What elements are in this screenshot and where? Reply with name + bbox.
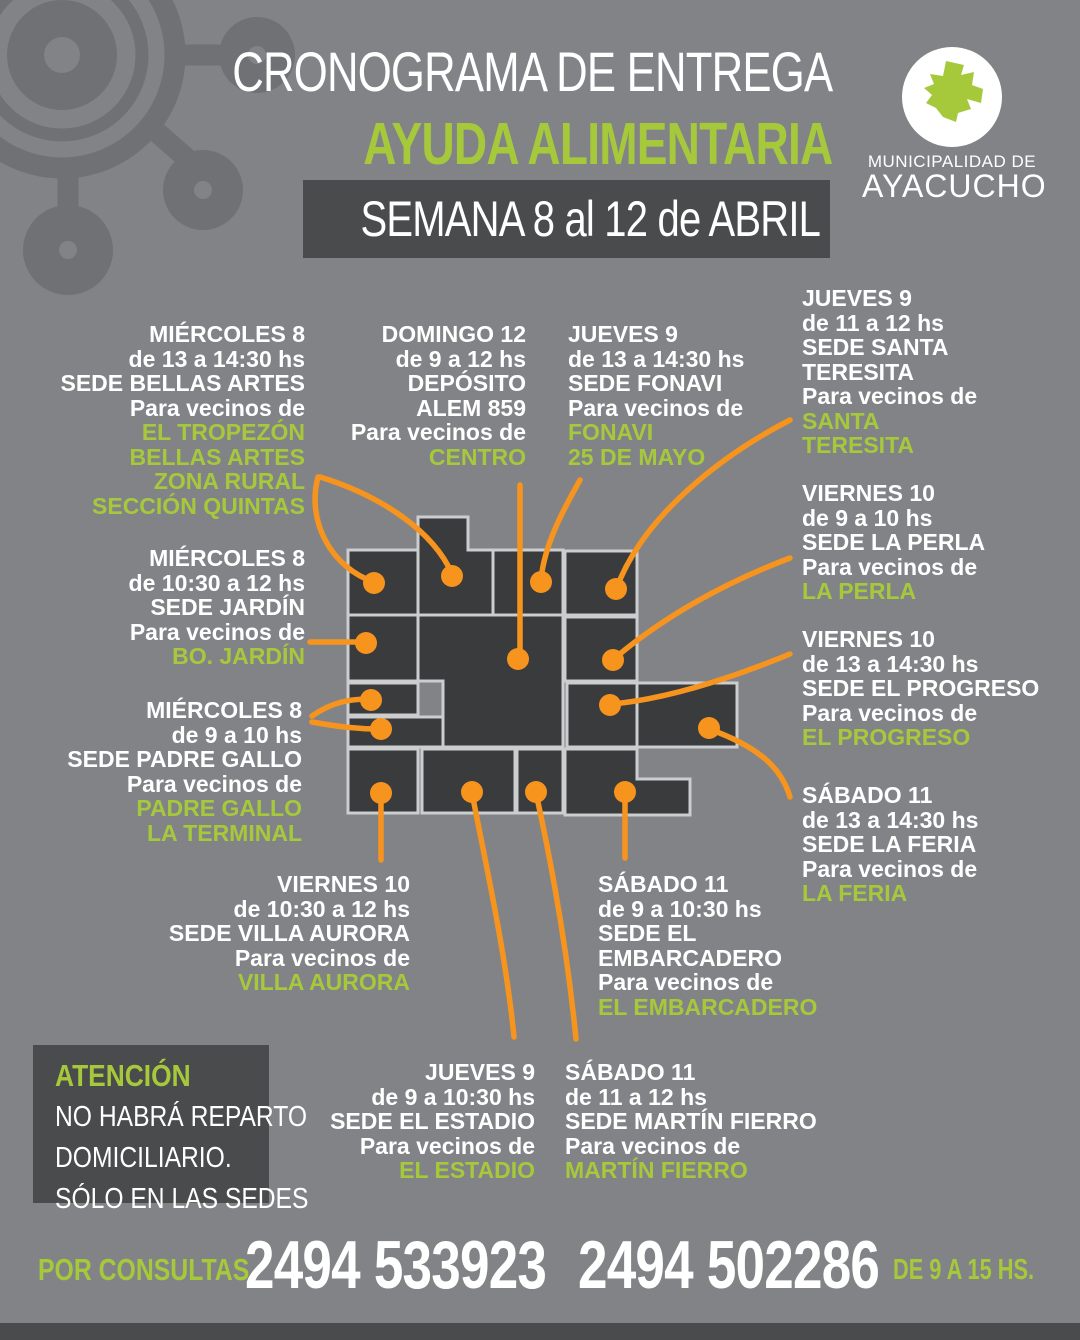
- schedule-intro: Para vecinos de: [351, 420, 526, 445]
- schedule-block-martin-fierro: SÁBADO 11de 11 a 12 hsSEDE MARTÍN FIERRO…: [565, 1060, 817, 1183]
- attention-box: ATENCIÓN NO HABRÁ REPARTO DOMICILIARIO. …: [33, 1045, 269, 1203]
- schedule-zone: SANTA: [802, 409, 977, 434]
- schedule-time: de 9 a 10:30 hs: [598, 897, 817, 922]
- schedule-block-la-feria: SÁBADO 11de 13 a 14:30 hsSEDE LA FERIAPa…: [802, 783, 978, 906]
- schedule-place: SEDE EL: [598, 921, 817, 946]
- attention-line-text: NO HABRÁ REPARTO: [55, 1099, 307, 1135]
- schedule-block-jardin: MIÉRCOLES 8de 10:30 a 12 hsSEDE JARDÍNPa…: [129, 546, 305, 669]
- schedule-block-villa-aurora: VIERNES 10de 10:30 a 12 hsSEDE VILLA AUR…: [169, 872, 410, 995]
- schedule-intro: Para vecinos de: [169, 946, 410, 971]
- schedule-block-padre-gallo: MIÉRCOLES 8de 9 a 10 hsSEDE PADRE GALLOP…: [67, 698, 302, 845]
- schedule-place: SEDE LA PERLA: [802, 530, 985, 555]
- schedule-zone: VILLA AURORA: [169, 970, 410, 995]
- schedule-place: SEDE LA FERIA: [802, 832, 978, 857]
- schedule-zone: EL TROPEZÓN: [60, 420, 305, 445]
- schedule-zone: FONAVI: [568, 420, 744, 445]
- schedule-time: de 13 a 14:30 hs: [802, 652, 1039, 677]
- schedule-intro: Para vecinos de: [60, 396, 305, 421]
- schedule-block-embarcadero: SÁBADO 11de 9 a 10:30 hsSEDE ELEMBARCADE…: [598, 872, 817, 1019]
- schedule-time: de 13 a 14:30 hs: [802, 808, 978, 833]
- schedule-time: de 9 a 10 hs: [802, 506, 985, 531]
- schedule-time: de 9 a 12 hs: [351, 347, 526, 372]
- attention-line-text: DOMICILIARIO.: [55, 1140, 232, 1176]
- schedule-place: SEDE PADRE GALLO: [67, 747, 302, 772]
- attention-line-text: SÓLO EN LAS SEDES: [55, 1181, 308, 1217]
- schedule-zone: BO. JARDÍN: [129, 644, 305, 669]
- schedule-place: DEPÓSITO: [351, 371, 526, 396]
- schedule-place: ALEM 859: [351, 396, 526, 421]
- schedule-day: MIÉRCOLES 8: [129, 546, 305, 571]
- schedule-day: SÁBADO 11: [598, 872, 817, 897]
- schedule-block-el-progreso: VIERNES 10de 13 a 14:30 hsSEDE EL PROGRE…: [802, 627, 1039, 750]
- schedule-time: de 9 a 10:30 hs: [330, 1085, 535, 1110]
- schedule-intro: Para vecinos de: [802, 857, 978, 882]
- schedule-zone: PADRE GALLO: [67, 796, 302, 821]
- schedule-day: MIÉRCOLES 8: [60, 322, 305, 347]
- schedule-intro: Para vecinos de: [565, 1134, 817, 1159]
- schedule-intro: Para vecinos de: [598, 970, 817, 995]
- schedule-block-la-perla: VIERNES 10de 9 a 10 hsSEDE LA PERLAPara …: [802, 481, 985, 604]
- schedule-block-santa-teresita: JUEVES 9de 11 a 12 hsSEDE SANTATERESITAP…: [802, 286, 977, 458]
- schedule-day: DOMINGO 12: [351, 322, 526, 347]
- schedule-zone: ZONA RURAL: [60, 469, 305, 494]
- schedule-day: JUEVES 9: [330, 1060, 535, 1085]
- schedule-block-estadio: JUEVES 9de 9 a 10:30 hsSEDE EL ESTADIOPa…: [330, 1060, 535, 1183]
- attention-line: NO HABRÁ REPARTO: [55, 1099, 269, 1140]
- schedule-time: de 13 a 14:30 hs: [568, 347, 744, 372]
- schedule-intro: Para vecinos de: [802, 701, 1039, 726]
- schedule-zone: EL ESTADIO: [330, 1158, 535, 1183]
- schedule-place: SEDE SANTA: [802, 335, 977, 360]
- schedule-time: de 9 a 10 hs: [67, 723, 302, 748]
- schedule-place: SEDE EL ESTADIO: [330, 1109, 535, 1134]
- schedule-day: JUEVES 9: [568, 322, 744, 347]
- schedule-place: SEDE EL PROGRESO: [802, 676, 1039, 701]
- schedule-zone: SECCIÓN QUINTAS: [60, 494, 305, 519]
- schedule-zone: TERESITA: [802, 433, 977, 458]
- schedule-block-centro: DOMINGO 12de 9 a 12 hsDEPÓSITOALEM 859Pa…: [351, 322, 526, 469]
- schedule-block-fonavi: JUEVES 9de 13 a 14:30 hsSEDE FONAVIPara …: [568, 322, 744, 469]
- schedule-place: EMBARCADERO: [598, 946, 817, 971]
- schedule-place: SEDE VILLA AURORA: [169, 921, 410, 946]
- schedule-intro: Para vecinos de: [802, 555, 985, 580]
- schedule-zone: EL EMBARCADERO: [598, 995, 817, 1020]
- schedule-intro: Para vecinos de: [802, 384, 977, 409]
- schedule-intro: Para vecinos de: [568, 396, 744, 421]
- schedule-zone: LA TERMINAL: [67, 821, 302, 846]
- schedule-day: MIÉRCOLES 8: [67, 698, 302, 723]
- schedule-place: SEDE JARDÍN: [129, 595, 305, 620]
- schedule-place: SEDE BELLAS ARTES: [60, 371, 305, 396]
- schedule-day: SÁBADO 11: [565, 1060, 817, 1085]
- schedule-day: VIERNES 10: [802, 481, 985, 506]
- schedule-day: VIERNES 10: [802, 627, 1039, 652]
- schedule-intro: Para vecinos de: [129, 620, 305, 645]
- schedule-place: SEDE MARTÍN FIERRO: [565, 1109, 817, 1134]
- schedule-zone: LA FERIA: [802, 881, 978, 906]
- schedule-day: JUEVES 9: [802, 286, 977, 311]
- schedule-intro: Para vecinos de: [67, 772, 302, 797]
- attention-line: SÓLO EN LAS SEDES: [55, 1181, 269, 1222]
- attention-title-row: ATENCIÓN: [55, 1058, 269, 1099]
- schedule-time: de 10:30 a 12 hs: [129, 571, 305, 596]
- schedule-day: VIERNES 10: [169, 872, 410, 897]
- schedule-zone: MARTÍN FIERRO: [565, 1158, 817, 1183]
- schedule-time: de 10:30 a 12 hs: [169, 897, 410, 922]
- bottom-strip: [0, 1323, 1080, 1340]
- schedule-time: de 11 a 12 hs: [565, 1085, 817, 1110]
- schedule-zone: LA PERLA: [802, 579, 985, 604]
- schedule-time: de 13 a 14:30 hs: [60, 347, 305, 372]
- schedule-day: SÁBADO 11: [802, 783, 978, 808]
- schedule-zone: CENTRO: [351, 445, 526, 470]
- schedule-place: SEDE FONAVI: [568, 371, 744, 396]
- schedule-time: de 11 a 12 hs: [802, 311, 977, 336]
- schedule-intro: Para vecinos de: [330, 1134, 535, 1159]
- attention-title: ATENCIÓN: [55, 1058, 191, 1093]
- schedule-zone: BELLAS ARTES: [60, 445, 305, 470]
- poster-root: CRONOGRAMA DE ENTREGA AYUDA ALIMENTARIA …: [0, 0, 1080, 1340]
- attention-line: DOMICILIARIO.: [55, 1140, 269, 1181]
- schedule-place: TERESITA: [802, 360, 977, 385]
- schedule-zone: EL PROGRESO: [802, 725, 1039, 750]
- schedule-block-bellas-artes: MIÉRCOLES 8de 13 a 14:30 hsSEDE BELLAS A…: [60, 322, 305, 518]
- schedule-zone: 25 DE MAYO: [568, 445, 744, 470]
